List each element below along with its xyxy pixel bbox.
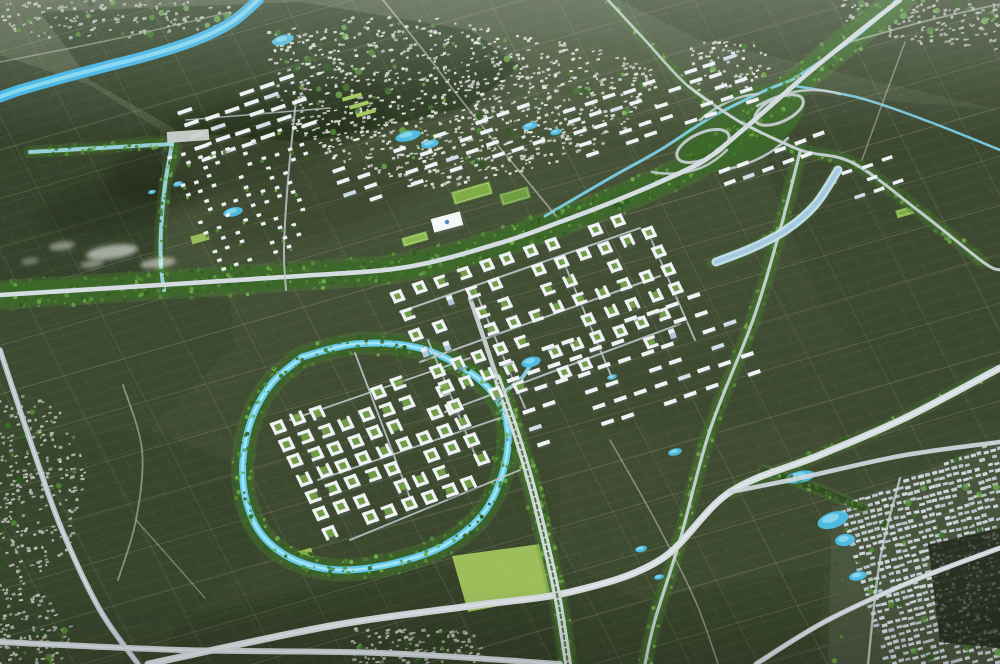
aerial-render-canvas	[0, 0, 1000, 664]
masterplan-aerial-view	[0, 0, 1000, 664]
